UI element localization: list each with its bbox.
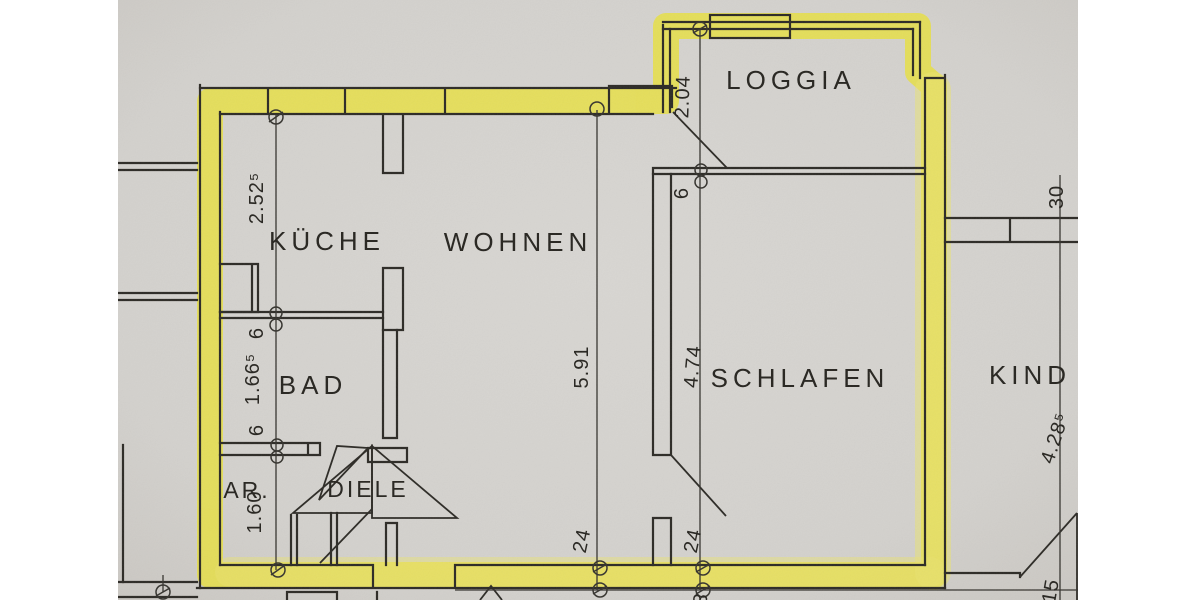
paper-grain-overlay <box>118 0 1078 600</box>
floor-plan-page: KÜCHE WOHNEN LOGGIA BAD AR. DIELE SCHLAF… <box>0 0 1200 600</box>
floor-plan-drawing: KÜCHE WOHNEN LOGGIA BAD AR. DIELE SCHLAF… <box>0 0 1200 600</box>
